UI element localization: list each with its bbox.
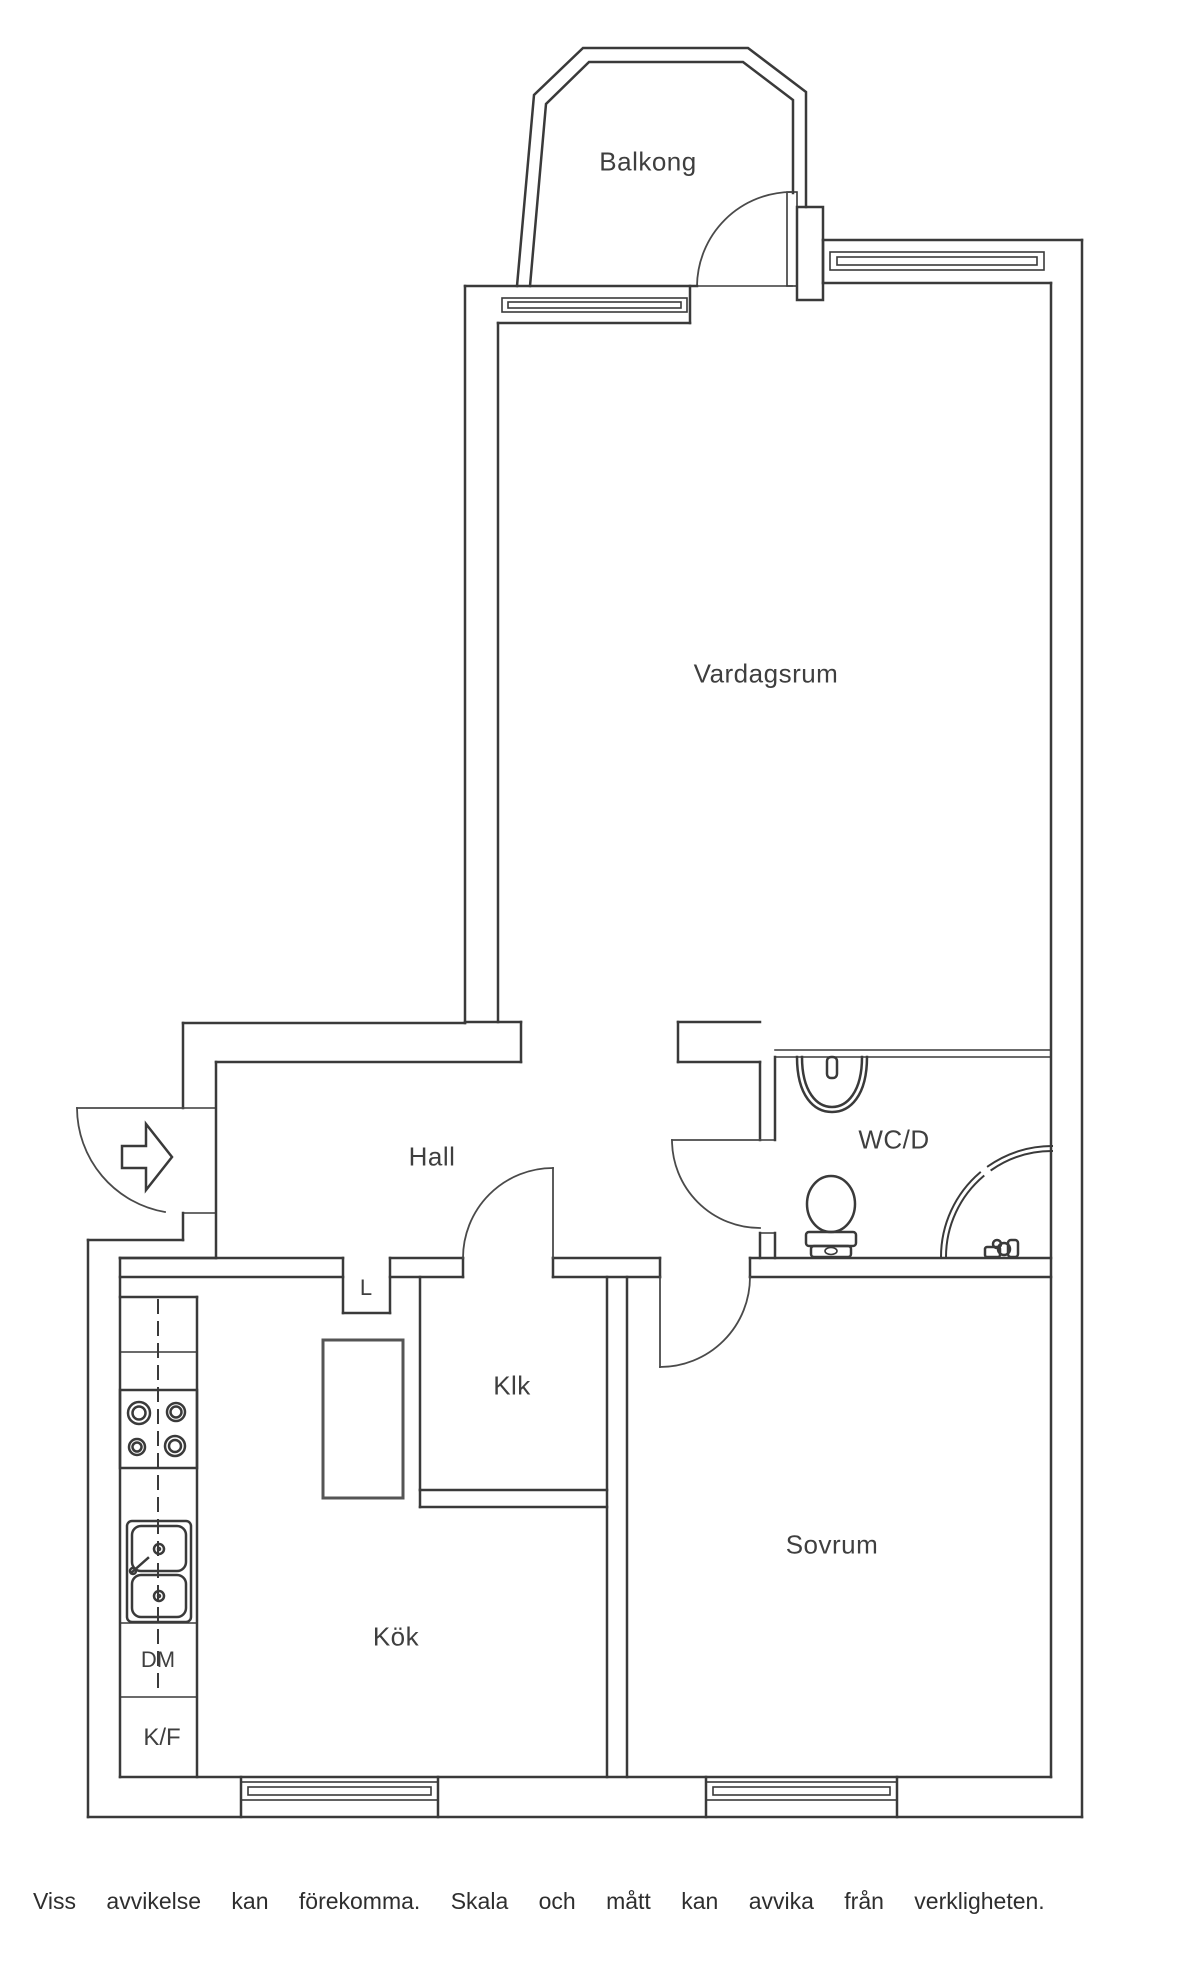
room-label-vardagsrum: Vardagsrum xyxy=(694,659,839,690)
entry-arrow-icon xyxy=(122,1124,172,1190)
window-bedroom xyxy=(706,1782,897,1800)
room-label-wcd: WC/D xyxy=(858,1125,929,1156)
label-dishwasher: DM xyxy=(141,1647,175,1673)
floor-plan: Balkong Vardagsrum Hall WC/D Klk Sovrum … xyxy=(0,0,1200,1968)
toilet-icon xyxy=(806,1176,856,1257)
balcony-door xyxy=(697,192,797,286)
shower-mixer-icon xyxy=(985,1240,1018,1257)
floor-plan-drawing xyxy=(0,0,1200,1968)
window-living-room-right xyxy=(830,252,1044,270)
room-label-sovrum: Sovrum xyxy=(786,1530,879,1561)
window-living-room-left xyxy=(502,298,687,312)
washbasin-icon xyxy=(797,1057,867,1112)
entry-door xyxy=(77,1108,183,1212)
wc-door xyxy=(672,1140,760,1228)
kitchen-sink-icon xyxy=(127,1521,191,1622)
room-label-balkong: Balkong xyxy=(599,147,696,178)
window-kitchen xyxy=(241,1782,438,1800)
label-fridge-freezer: K/F xyxy=(143,1724,180,1752)
tall-cabinet xyxy=(323,1340,403,1498)
closet-walls xyxy=(420,1277,627,1777)
disclaimer-text: Viss avvikelse kan förekomma. Skala och … xyxy=(33,1888,1167,1915)
balcony-pillar xyxy=(797,207,823,300)
hall-bottom-walls xyxy=(120,1258,1051,1277)
exterior-walls xyxy=(88,240,1082,1817)
bedroom-door xyxy=(660,1277,750,1367)
label-linen-closet: L xyxy=(360,1275,372,1301)
room-label-klk: Klk xyxy=(493,1371,531,1402)
room-label-hall: Hall xyxy=(409,1142,456,1173)
room-label-kok: Kök xyxy=(373,1622,419,1653)
klk-door xyxy=(463,1168,553,1258)
